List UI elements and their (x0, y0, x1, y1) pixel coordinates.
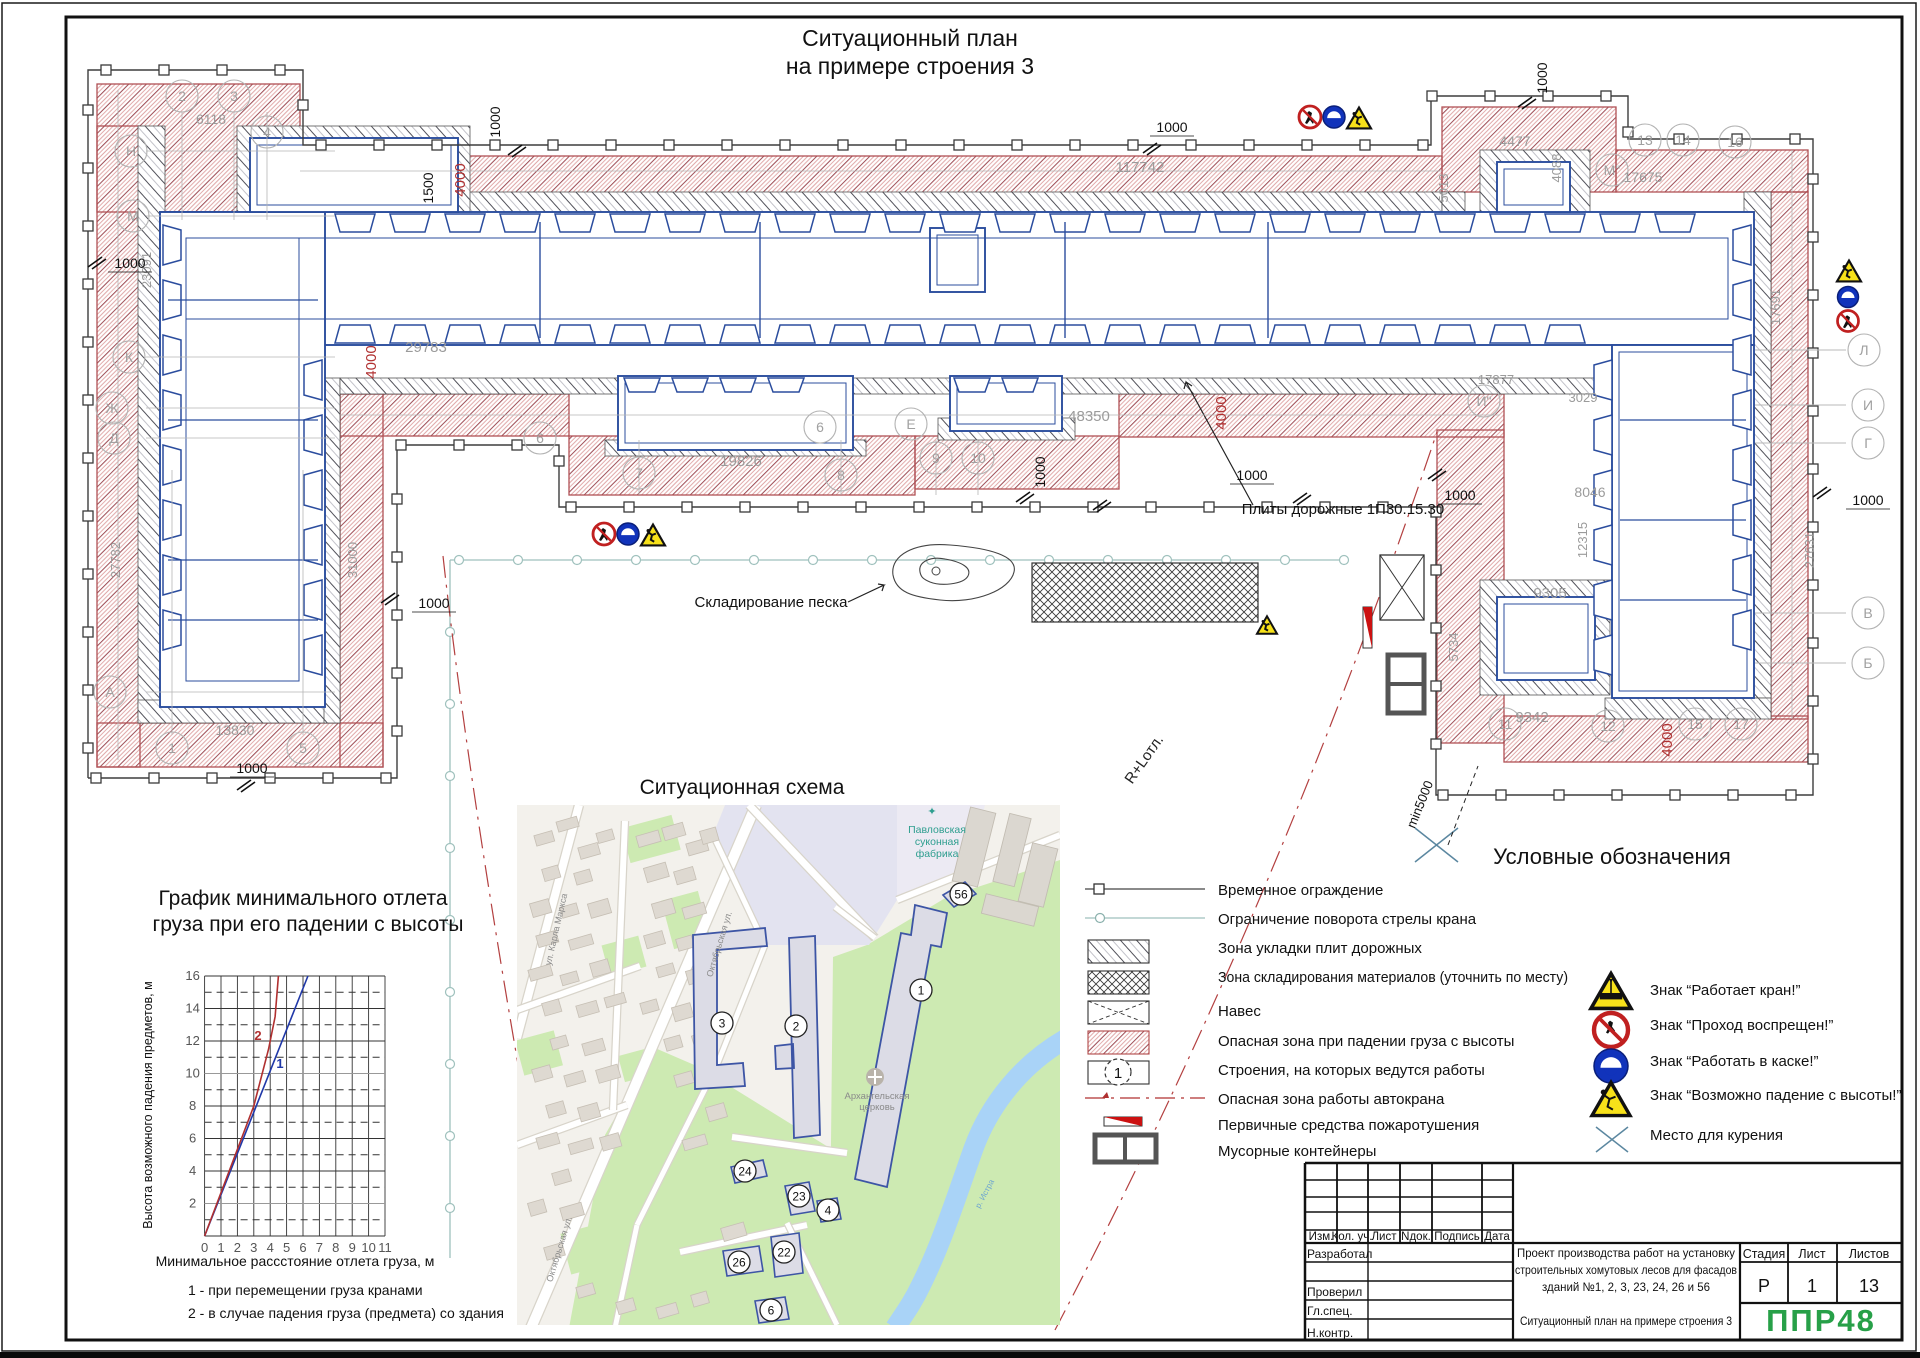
svg-text:К: К (125, 349, 134, 365)
svg-text:13: 13 (1859, 1276, 1879, 1296)
svg-text:13830: 13830 (216, 722, 255, 738)
svg-text:фабрика: фабрика (916, 848, 959, 860)
svg-text:4477: 4477 (1499, 133, 1530, 149)
svg-text:Ситуационный план: Ситуационный план (802, 25, 1018, 51)
svg-text:3029: 3029 (1569, 390, 1598, 405)
svg-text:2: 2 (178, 88, 186, 104)
svg-text:1: 1 (1114, 1065, 1122, 1082)
svg-text:6: 6 (189, 1131, 196, 1146)
svg-text:1: 1 (1807, 1276, 1817, 1296)
svg-text:24: 24 (738, 1165, 752, 1179)
svg-text:2: 2 (254, 1028, 261, 1043)
svg-text:2 - в случае падения груза (пр: 2 - в случае падения груза (предмета) со… (188, 1305, 504, 1321)
svg-text:29783: 29783 (405, 339, 447, 356)
svg-text:Проект производства работ на у: Проект производства работ на установку (1517, 1246, 1736, 1260)
svg-text:4: 4 (263, 124, 271, 140)
svg-text:14: 14 (185, 1001, 199, 1016)
svg-text:5: 5 (299, 740, 307, 756)
svg-text:Павловская: Павловская (908, 824, 966, 836)
svg-text:Строения, на которых ведутся р: Строения, на которых ведутся работы (1218, 1062, 1485, 1079)
svg-text:6: 6 (536, 430, 544, 446)
svg-text:Знак “Работать в каске!”: Знак “Работать в каске!” (1650, 1053, 1819, 1070)
svg-text:Р: Р (1758, 1276, 1770, 1296)
svg-text:Зона укладки плит дорожных: Зона укладки плит дорожных (1218, 940, 1422, 957)
svg-text:Ситуационная схема: Ситуационная схема (640, 776, 845, 799)
svg-text:12315: 12315 (1575, 522, 1590, 558)
svg-text:117742: 117742 (1116, 159, 1165, 176)
svg-text:1: 1 (168, 740, 176, 756)
svg-text:12: 12 (1600, 718, 1616, 734)
svg-text:1000: 1000 (487, 106, 503, 137)
svg-text:Первичные средства пожаротушен: Первичные средства пожаротушения (1218, 1117, 1479, 1134)
svg-text:Стадия: Стадия (1743, 1247, 1786, 1261)
svg-text:1000: 1000 (1032, 456, 1048, 487)
svg-text:17877: 17877 (1478, 372, 1514, 387)
svg-text:Изм.: Изм. (1309, 1231, 1334, 1243)
svg-text:4088: 4088 (1549, 154, 1564, 183)
svg-text:груза при его падении с высоты: груза при его падении с высоты (153, 913, 464, 936)
svg-text:1000: 1000 (418, 595, 449, 611)
svg-text:2: 2 (793, 1020, 800, 1034)
svg-text:4000: 4000 (1659, 723, 1676, 756)
svg-text:График минимального отлета: График минимального отлета (158, 887, 447, 910)
svg-text:Минимальное рассстояние отлета: Минимальное рассстояние отлета груза, м (156, 1253, 435, 1269)
svg-text:Н.контр.: Н.контр. (1307, 1326, 1353, 1340)
svg-text:Опасная зона работы автокрана: Опасная зона работы автокрана (1218, 1091, 1445, 1108)
svg-text:3: 3 (230, 88, 238, 104)
svg-text:Плиты дорожные 1П30.15.30: Плиты дорожные 1П30.15.30 (1242, 501, 1444, 518)
svg-text:1000: 1000 (1534, 62, 1550, 93)
svg-text:5734: 5734 (1446, 633, 1461, 662)
svg-text:ППР48: ППР48 (1766, 1303, 1876, 1338)
svg-text:1000: 1000 (1444, 487, 1475, 503)
svg-text:6: 6 (816, 419, 824, 435)
svg-text:4000: 4000 (363, 345, 380, 378)
svg-text:М: М (127, 208, 139, 224)
svg-text:Лист: Лист (1798, 1247, 1825, 1261)
svg-text:Разработал: Разработал (1307, 1247, 1372, 1261)
svg-text:14: 14 (1675, 132, 1691, 148)
svg-text:Условные обозначения: Условные обозначения (1493, 844, 1731, 869)
svg-text:16: 16 (1727, 134, 1743, 150)
svg-text:Опасная зона при падении груза: Опасная зона при падении груза с высоты (1218, 1033, 1514, 1050)
svg-text:17675: 17675 (1624, 169, 1663, 185)
svg-text:27631: 27631 (1802, 532, 1817, 568)
svg-text:церковь: церковь (859, 1102, 894, 1113)
svg-text:31000: 31000 (345, 542, 360, 578)
svg-text:9342: 9342 (1515, 709, 1548, 726)
svg-text:8: 8 (189, 1098, 196, 1113)
svg-text:зданий №1, 2, 3, 23, 24, 26 и: зданий №1, 2, 3, 23, 24, 26 и 56 (1542, 1280, 1710, 1294)
svg-text:И: И (1863, 397, 1873, 413)
svg-text:Б: Б (1863, 655, 1872, 671)
svg-text:9: 9 (932, 450, 940, 466)
svg-text:4000: 4000 (1213, 396, 1230, 429)
svg-text:17: 17 (1733, 716, 1749, 732)
svg-text:М": М" (1604, 162, 1621, 178)
svg-text:22: 22 (777, 1246, 791, 1260)
svg-text:23: 23 (792, 1190, 806, 1204)
svg-text:Листов: Листов (1849, 1247, 1890, 1261)
svg-text:Гл.спец.: Гл.спец. (1307, 1304, 1353, 1318)
svg-text:Ограничение поворота стрелы кр: Ограничение поворота стрелы крана (1218, 911, 1477, 928)
svg-text:Зона складирования материалов: Зона складирования материалов (уточнить … (1218, 969, 1568, 986)
svg-text:4: 4 (825, 1204, 832, 1218)
svg-text:Л: Л (1859, 342, 1868, 358)
svg-text:Навес: Навес (1218, 1003, 1261, 1020)
svg-text:15: 15 (1687, 716, 1703, 732)
svg-text:Nдок.: Nдок. (1401, 1231, 1431, 1243)
svg-text:6118: 6118 (196, 111, 226, 127)
svg-text:Подпись: Подпись (1434, 1231, 1480, 1243)
svg-text:6: 6 (768, 1304, 775, 1318)
svg-text:Высота возможного падения пред: Высота возможного падения предметов, м (141, 981, 155, 1228)
svg-text:Н: Н (126, 143, 136, 159)
svg-text:Знак “Работает кран!”: Знак “Работает кран!” (1650, 982, 1800, 999)
svg-text:В: В (1863, 605, 1872, 621)
svg-text:Г: Г (1864, 435, 1872, 451)
svg-text:Проверил: Проверил (1307, 1285, 1362, 1299)
svg-text:48350: 48350 (1068, 408, 1110, 425)
svg-text:4000: 4000 (452, 163, 469, 196)
svg-text:1 - при перемещении груза кран: 1 - при перемещении груза кранами (188, 1282, 423, 1298)
svg-text:27782: 27782 (108, 542, 123, 578)
svg-text:4: 4 (189, 1163, 196, 1178)
svg-text:Д: Д (109, 430, 119, 446)
svg-text:17691: 17691 (1768, 289, 1783, 325)
svg-text:1: 1 (918, 984, 925, 998)
svg-text:10: 10 (185, 1066, 199, 1081)
svg-text:16: 16 (185, 968, 199, 983)
svg-text:И": И" (1476, 393, 1491, 409)
svg-text:26: 26 (732, 1256, 746, 1270)
svg-text:Мусорные контейнеры: Мусорные контейнеры (1218, 1143, 1376, 1160)
svg-text:7: 7 (635, 465, 643, 481)
svg-text:Знак “Возможно падение с высот: Знак “Возможно падение с высоты!” (1650, 1087, 1901, 1104)
svg-text:56: 56 (954, 888, 968, 902)
svg-text:✦: ✦ (927, 806, 936, 818)
svg-text:на примере строения 3: на примере строения 3 (786, 53, 1034, 79)
svg-text:Е: Е (906, 416, 915, 432)
svg-text:суконная: суконная (915, 836, 959, 848)
svg-text:1500: 1500 (420, 172, 436, 203)
svg-text:1000: 1000 (1156, 119, 1187, 135)
svg-text:1000: 1000 (1852, 492, 1883, 508)
svg-text:2: 2 (189, 1196, 196, 1211)
svg-text:10: 10 (970, 450, 986, 466)
svg-text:1000: 1000 (1236, 467, 1267, 483)
svg-text:5013: 5013 (1436, 174, 1451, 203)
svg-text:3: 3 (719, 1017, 726, 1031)
svg-text:Место для курения: Место для курения (1650, 1127, 1783, 1144)
svg-text:8: 8 (837, 467, 845, 483)
svg-text:Кол. уч.: Кол. уч. (1332, 1231, 1373, 1243)
svg-text:Лист: Лист (1372, 1231, 1398, 1243)
svg-text:9305: 9305 (1533, 585, 1566, 602)
svg-text:19826: 19826 (720, 453, 762, 470)
svg-text:Ж: Ж (106, 400, 119, 416)
svg-text:Дата: Дата (1484, 1231, 1510, 1243)
svg-text:1000: 1000 (236, 760, 267, 776)
svg-text:12: 12 (185, 1033, 199, 1048)
svg-text:Архангельская: Архангельская (845, 1091, 910, 1102)
svg-text:13: 13 (1637, 132, 1653, 148)
svg-text:А: А (105, 684, 115, 700)
svg-text:8046: 8046 (1574, 484, 1605, 500)
svg-text:11: 11 (1498, 716, 1513, 732)
svg-text:Знак “Проход воспрещен!”: Знак “Проход воспрещен!” (1650, 1017, 1833, 1034)
svg-text:1: 1 (276, 1056, 283, 1071)
svg-text:Складирование песка: Складирование песка (695, 594, 849, 611)
svg-text:строительных хомутовых лесов д: строительных хомутовых лесов для фасадов (1515, 1263, 1737, 1277)
svg-text:1000: 1000 (114, 255, 145, 271)
svg-text:Временное ограждение: Временное ограждение (1218, 882, 1383, 899)
svg-text:Ситуационный план на примере с: Ситуационный план на примере строения 3 (1520, 1314, 1732, 1328)
